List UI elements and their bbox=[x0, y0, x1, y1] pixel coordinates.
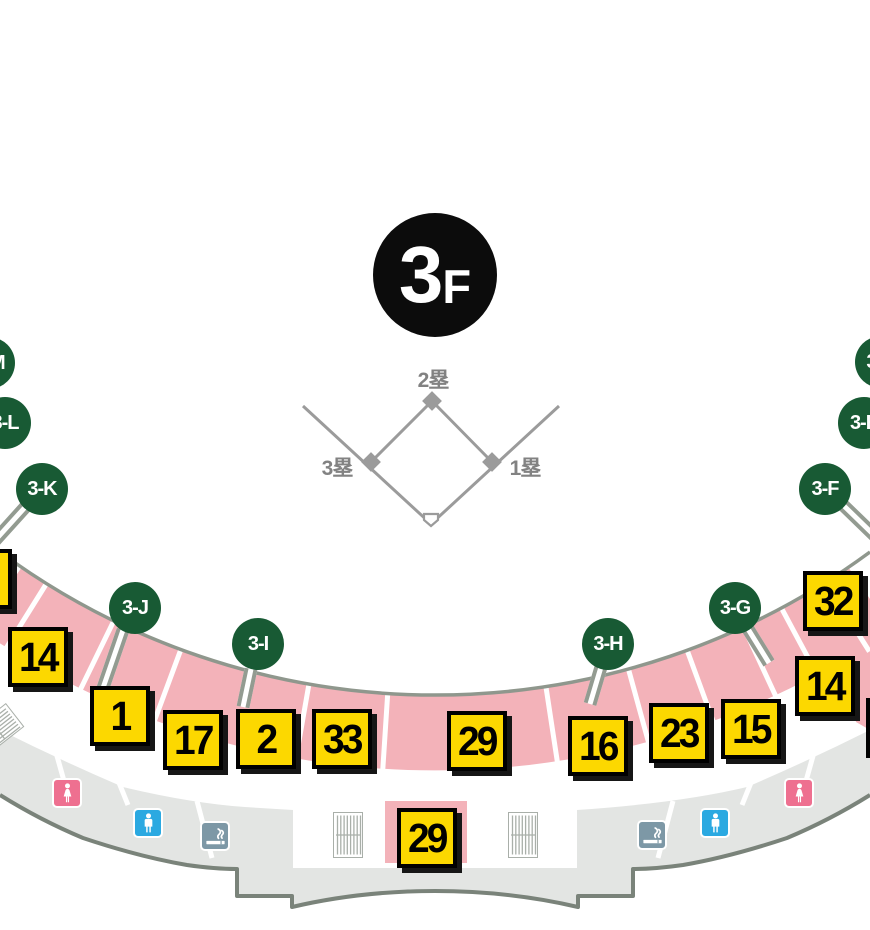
section-number: 32 bbox=[814, 581, 852, 622]
smoking-area-icon bbox=[200, 821, 230, 851]
first-base-label: 1塁 bbox=[510, 452, 541, 482]
section-box-partial[interactable] bbox=[0, 549, 12, 609]
male-figure-icon bbox=[137, 812, 160, 835]
gate-badge-3-i[interactable]: 3-I bbox=[232, 618, 284, 670]
section-number: 29 bbox=[408, 818, 446, 859]
section-box-1[interactable]: 1 bbox=[90, 686, 150, 746]
section-box-17[interactable]: 17 bbox=[163, 710, 223, 770]
section-box-29[interactable]: 29 bbox=[447, 711, 507, 771]
section-number: 16 bbox=[579, 726, 617, 767]
floor-level-badge: 3 F bbox=[373, 213, 497, 337]
stadium-map-graphics bbox=[0, 0, 870, 930]
section-box-partial[interactable] bbox=[866, 698, 870, 758]
section-box-16[interactable]: 16 bbox=[568, 716, 628, 776]
gate-badge-3-j[interactable]: 3-J bbox=[109, 582, 161, 634]
gate-label: 3-J bbox=[122, 597, 148, 620]
stairs-icon bbox=[508, 812, 538, 858]
section-number: 15 bbox=[732, 709, 770, 750]
stairs-grid-icon bbox=[510, 814, 537, 856]
section-number: 23 bbox=[660, 713, 698, 754]
section-number: 33 bbox=[323, 719, 361, 760]
gate-label: 3-L bbox=[0, 412, 19, 435]
gate-badge-3-f[interactable]: 3-F bbox=[799, 463, 851, 515]
gate-badge-3-k[interactable]: 3-K bbox=[16, 463, 68, 515]
gate-badge-3-h[interactable]: 3-H bbox=[582, 618, 634, 670]
section-number: 1 bbox=[111, 696, 130, 737]
home-plate-icon bbox=[424, 514, 438, 526]
gate-label: 3-M bbox=[0, 352, 5, 375]
gate-label: 3-F bbox=[812, 478, 839, 501]
section-box-2[interactable]: 2 bbox=[236, 709, 296, 769]
section-number: 14 bbox=[806, 666, 844, 707]
section-box-14[interactable]: 14 bbox=[795, 656, 855, 716]
restroom-female-icon bbox=[784, 778, 814, 808]
restroom-male-icon bbox=[133, 808, 163, 838]
male-figure-icon bbox=[704, 812, 727, 835]
section-box-14[interactable]: 14 bbox=[8, 627, 68, 687]
section-number: 14 bbox=[19, 637, 57, 678]
floor-suffix: F bbox=[442, 263, 471, 310]
section-box-33[interactable]: 33 bbox=[312, 709, 372, 769]
female-figure-icon bbox=[788, 782, 811, 805]
section-box-29[interactable]: 29 bbox=[397, 808, 457, 868]
third-base-label: 3塁 bbox=[322, 452, 353, 482]
section-number: 2 bbox=[257, 719, 276, 760]
stadium-floor-map: 3 F 2塁 3塁 1塁 3-M 3-L 3-K 3-J 3-I 3-H 3-G… bbox=[0, 0, 870, 930]
stairs-icon bbox=[333, 812, 363, 858]
section-number: 17 bbox=[174, 720, 212, 761]
second-base-label: 2塁 bbox=[418, 364, 449, 394]
gate-label: 3-H bbox=[593, 633, 622, 656]
gate-badge-3-g[interactable]: 3-G bbox=[709, 582, 761, 634]
female-figure-icon bbox=[56, 782, 79, 805]
cigarette-icon bbox=[641, 824, 664, 847]
cigarette-icon bbox=[204, 825, 227, 848]
gate-label: 3-D bbox=[866, 351, 870, 374]
floor-number: 3 bbox=[399, 235, 441, 315]
restroom-female-icon bbox=[52, 778, 82, 808]
gate-label: 3-G bbox=[720, 597, 750, 620]
section-number: 29 bbox=[458, 721, 496, 762]
section-box-32[interactable]: 32 bbox=[803, 571, 863, 631]
gate-label: 3-I bbox=[248, 633, 268, 656]
restroom-male-icon bbox=[700, 808, 730, 838]
smoking-area-icon bbox=[637, 820, 667, 850]
gate-label: 3-E bbox=[850, 412, 870, 435]
section-box-15[interactable]: 15 bbox=[721, 699, 781, 759]
section-box-23[interactable]: 23 bbox=[649, 703, 709, 763]
stairs-grid-icon bbox=[335, 814, 362, 856]
gate-label: 3-K bbox=[27, 478, 56, 501]
